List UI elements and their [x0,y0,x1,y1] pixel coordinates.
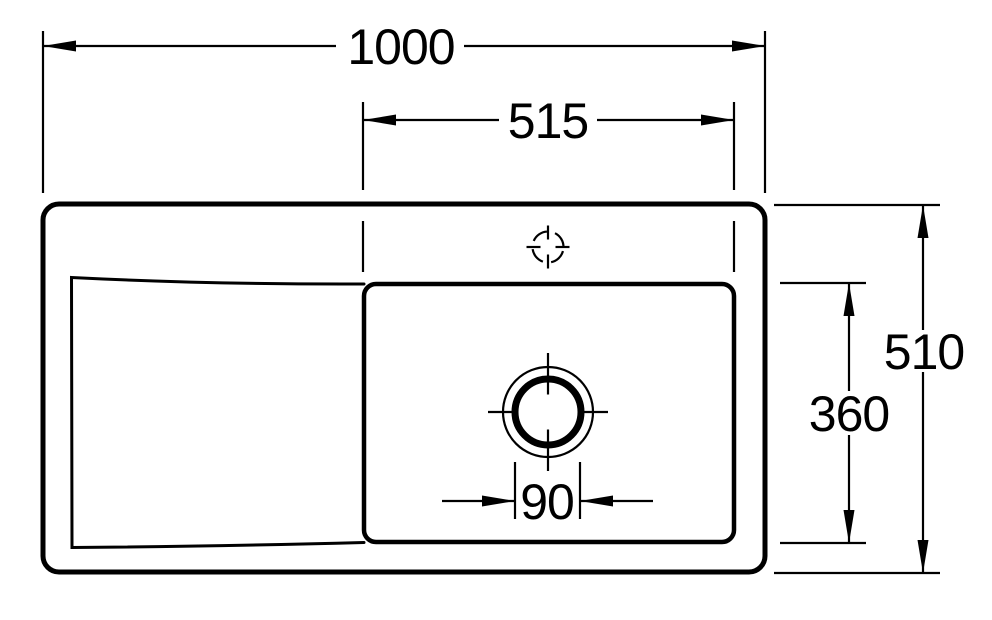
arrowhead-right [701,115,734,126]
sink-plan [43,204,765,572]
sink-outline [43,204,765,572]
drawing-canvas: 1000 515 510 360 [0,0,992,620]
arrowhead-down [844,510,855,543]
dimension-label-overall-depth: 510 [884,324,964,380]
dimension-overall-width: 1000 [43,19,765,193]
arrowhead-up [918,205,929,238]
arrowhead-right [482,496,515,507]
arrowhead-left [43,41,76,52]
dimension-label-basin-depth: 360 [809,386,889,442]
arrowhead-left [580,496,613,507]
tap-hole-marker [527,226,570,269]
arrowhead-right [732,41,765,52]
dimension-basin-depth: 360 [780,283,889,543]
drain [488,353,608,471]
arrowhead-up [844,283,855,316]
drainboard-outline [72,278,365,548]
dimension-label-overall-width: 1000 [347,19,454,75]
arrowhead-left [363,115,396,126]
dimension-drain-diameter: 90 [442,462,653,530]
dimension-basin-width: 515 [363,93,734,272]
arrowhead-down [918,540,929,573]
dimension-label-drain-diameter: 90 [520,474,574,530]
dimension-label-basin-width: 515 [508,93,588,149]
sink-technical-drawing: 1000 515 510 360 [0,0,992,620]
